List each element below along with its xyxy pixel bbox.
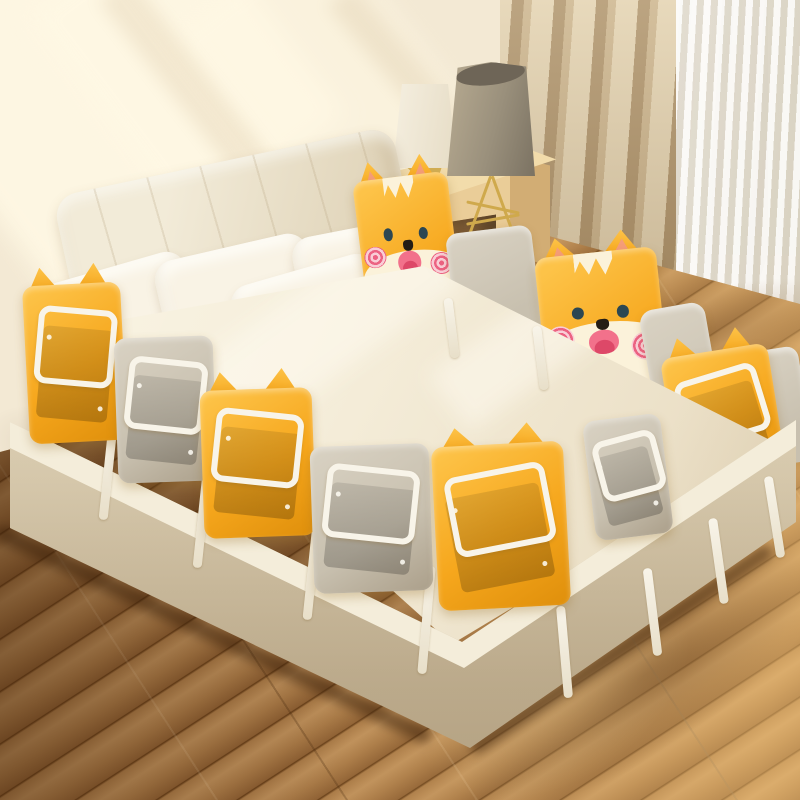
rail-panel-yellow-handle bbox=[431, 441, 571, 612]
shiba-blaze bbox=[573, 250, 615, 282]
fold-handle bbox=[33, 304, 118, 389]
yellow-panel-body bbox=[199, 387, 316, 539]
shiba-eye bbox=[571, 306, 584, 320]
shiba-eye bbox=[383, 228, 394, 241]
shiba-blaze bbox=[382, 174, 415, 205]
fold-handle bbox=[321, 462, 421, 545]
fold-handle bbox=[123, 355, 209, 436]
yellow-panel-body bbox=[22, 282, 128, 445]
fold-handle bbox=[210, 407, 305, 490]
grey-panel-body bbox=[309, 443, 433, 594]
lamp-shade-grey bbox=[447, 62, 535, 176]
rail-panel-grey-handle bbox=[582, 413, 674, 542]
shiba-eye bbox=[418, 226, 429, 239]
rail-panel-yellow-handle bbox=[22, 282, 128, 445]
yellow-panel-body bbox=[431, 441, 571, 612]
rail-panel-yellow-handle bbox=[199, 387, 316, 539]
shiba-eye bbox=[616, 305, 629, 319]
bedroom-product-photo bbox=[0, 0, 800, 800]
lamp-shade-white bbox=[393, 84, 457, 168]
rail-panel-grey-handle bbox=[309, 443, 433, 594]
grey-panel-body bbox=[582, 413, 674, 542]
